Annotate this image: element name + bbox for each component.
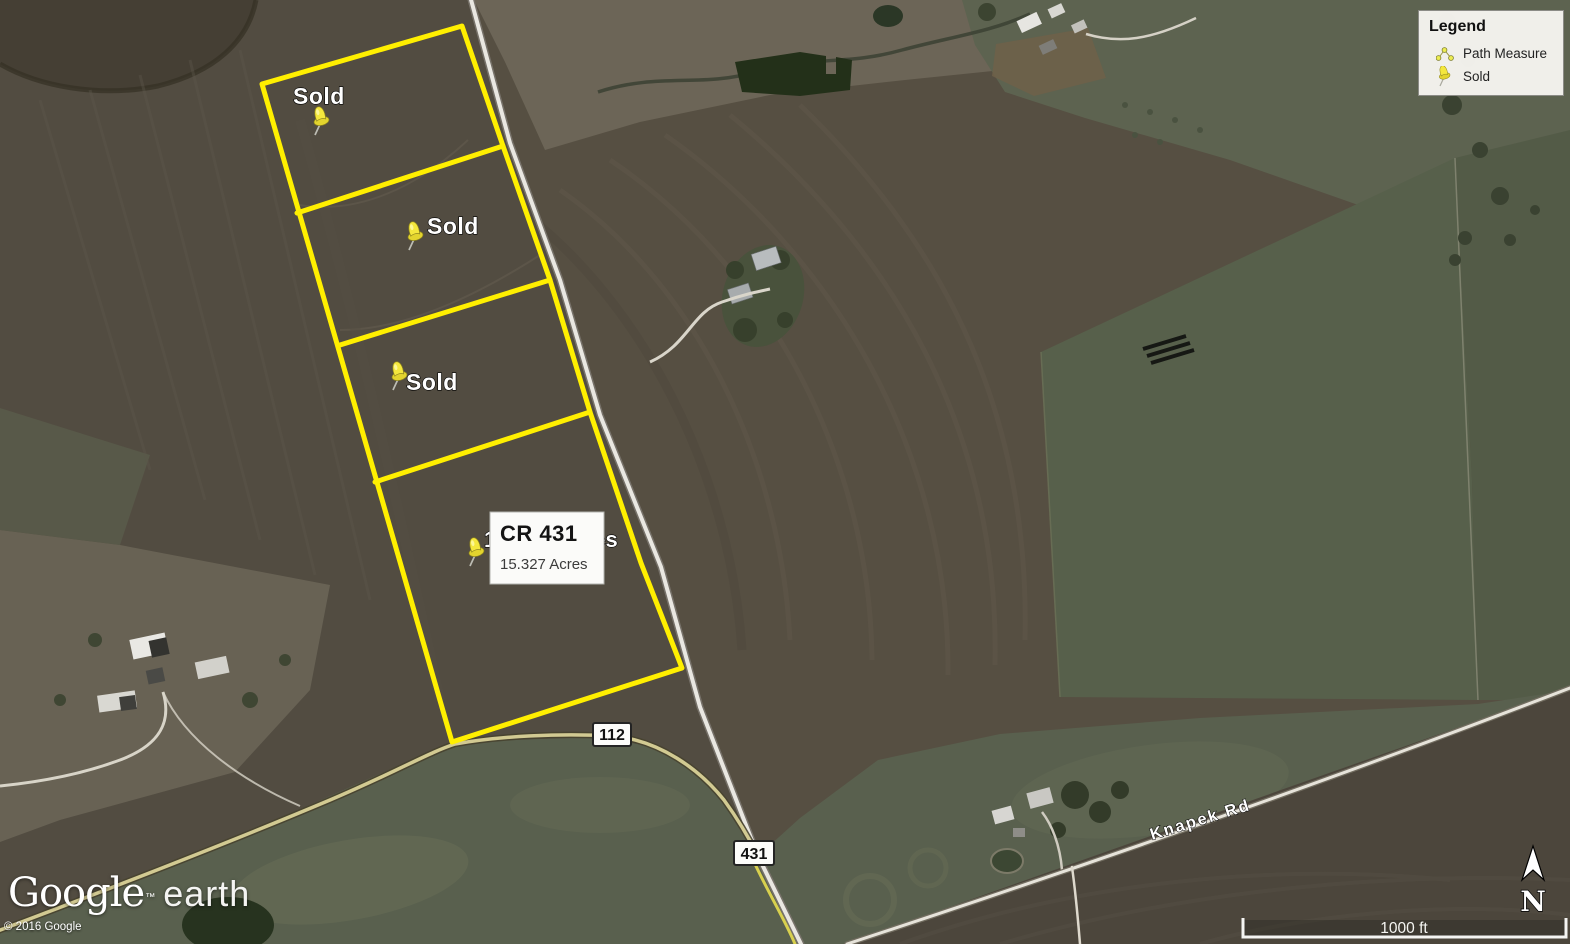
path-measure-icon [1436, 47, 1454, 61]
logo-trademark: ™ [145, 892, 155, 903]
parcel-info-title: CR 431 [500, 521, 578, 546]
sold-pushpin-icon [1436, 66, 1454, 88]
scale-bar: 1000 ft [1243, 918, 1566, 937]
satellite-map[interactable]: 15.327 Acres Sold Sold Sold CR 431 15.32… [0, 0, 1570, 944]
parcel-info-acreage: 15.327 Acres [500, 556, 588, 573]
road-badge-431: 431 [734, 841, 774, 865]
sold-label-2: Sold [427, 213, 479, 239]
legend-item-sold: Sold [1427, 65, 1555, 88]
road-badge-431-text: 431 [741, 846, 768, 863]
logo-earth: earth [163, 873, 250, 914]
legend-item-label: Sold [1463, 69, 1490, 84]
google-earth-window: 15.327 Acres Sold Sold Sold CR 431 15.32… [0, 0, 1570, 944]
legend-item-path-measure: Path Measure [1427, 42, 1555, 65]
sold-label-3: Sold [406, 369, 458, 395]
legend-panel: Legend Path Measure Sold [1418, 10, 1564, 96]
logo-google: Google [8, 870, 144, 916]
terrain-fields [0, 0, 1570, 944]
legend-item-label: Path Measure [1463, 46, 1547, 61]
sold-label-1: Sold [293, 83, 345, 109]
copyright-notice: © 2016 Google [4, 921, 82, 933]
road-badge-112: 112 [593, 723, 631, 746]
road-badge-112-text: 112 [599, 727, 625, 744]
legend-title: Legend [1429, 18, 1555, 36]
parcel-info-box[interactable]: CR 431 15.327 Acres [490, 512, 604, 584]
google-earth-logo: Google™earth [8, 870, 250, 916]
scale-bar-label: 1000 ft [1380, 920, 1428, 937]
north-label: N [1520, 885, 1546, 918]
